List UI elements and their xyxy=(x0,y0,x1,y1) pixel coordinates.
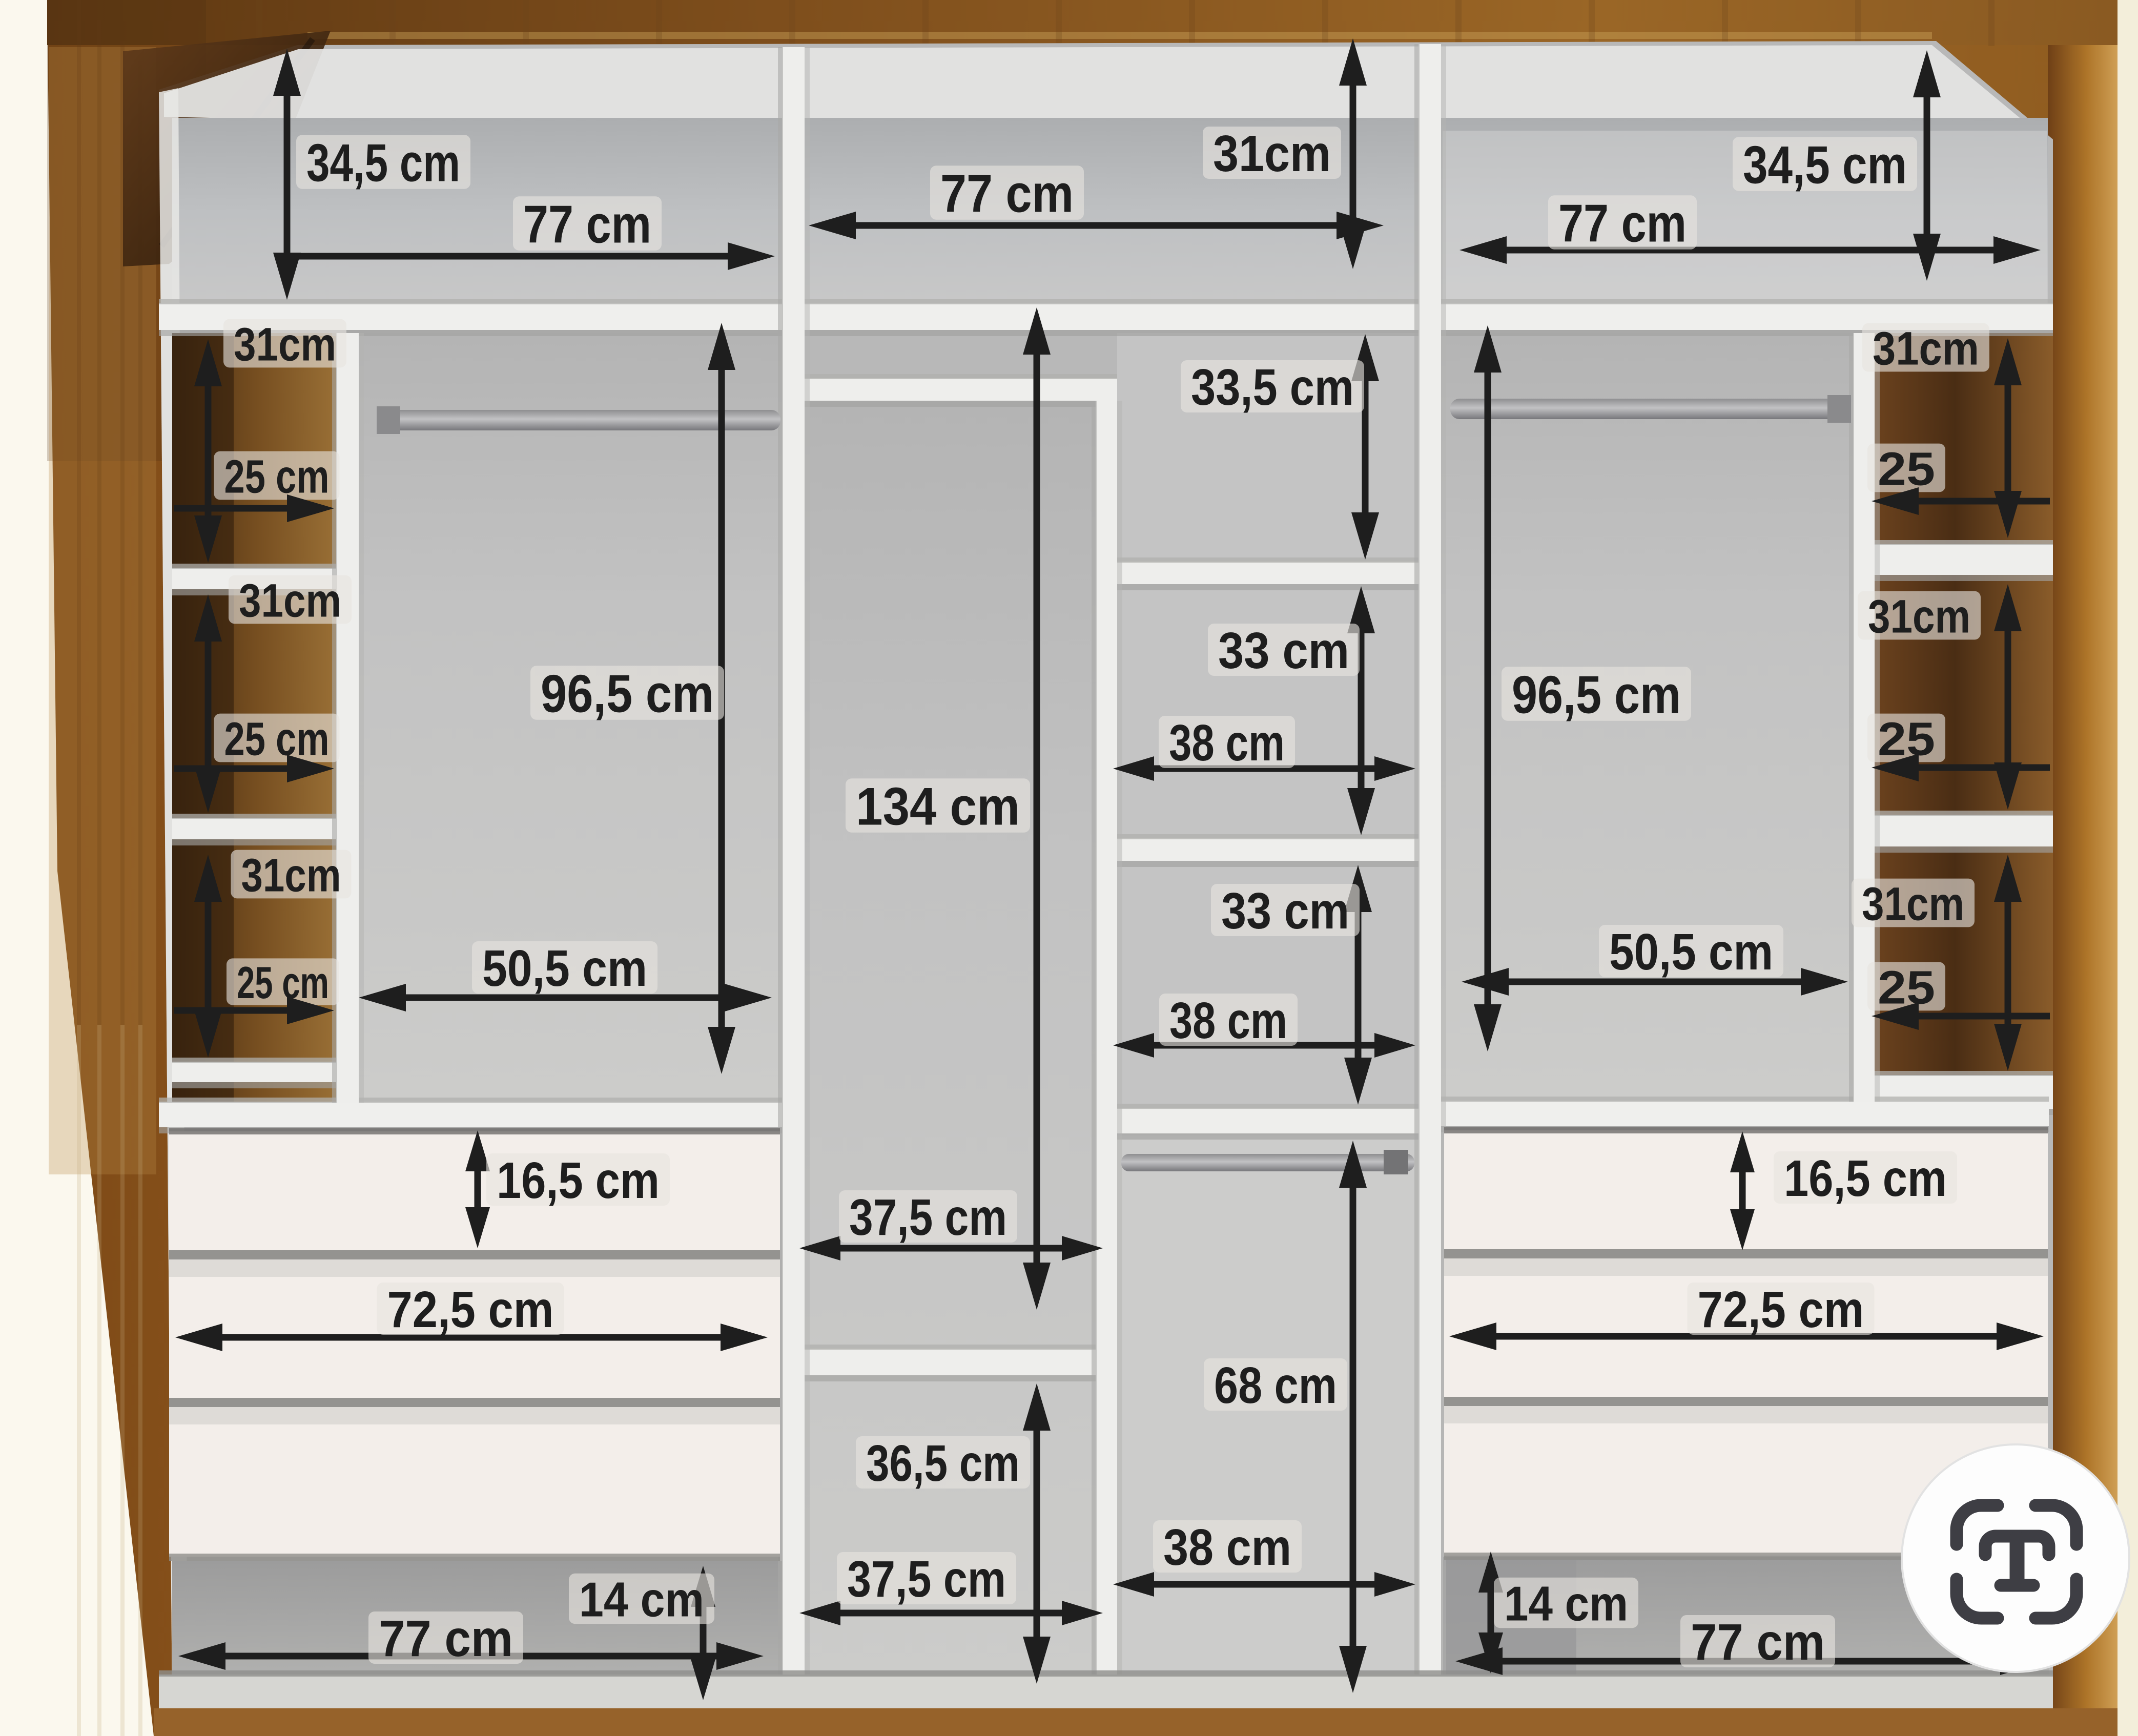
svg-text:134 cm: 134 cm xyxy=(856,777,1020,836)
svg-text:50,5 cm: 50,5 cm xyxy=(482,940,647,997)
svg-text:25 cm: 25 cm xyxy=(224,713,330,765)
svg-text:31cm: 31cm xyxy=(1862,878,1964,930)
svg-text:77 cm: 77 cm xyxy=(523,195,651,254)
svg-text:31cm: 31cm xyxy=(1873,322,1979,375)
svg-text:38 cm: 38 cm xyxy=(1169,992,1287,1049)
svg-text:72,5 cm: 72,5 cm xyxy=(387,1281,554,1338)
svg-text:38 cm: 38 cm xyxy=(1163,1519,1291,1576)
svg-text:31cm: 31cm xyxy=(234,318,336,370)
svg-text:77 cm: 77 cm xyxy=(379,1610,513,1667)
svg-text:33 cm: 33 cm xyxy=(1218,622,1349,679)
svg-text:37,5 cm: 37,5 cm xyxy=(847,1551,1006,1608)
svg-text:96,5 cm: 96,5 cm xyxy=(1512,665,1681,725)
svg-text:31cm: 31cm xyxy=(241,849,341,901)
svg-text:16,5 cm: 16,5 cm xyxy=(1784,1150,1947,1207)
svg-text:33 cm: 33 cm xyxy=(1221,882,1349,940)
svg-text:25: 25 xyxy=(1878,713,1935,765)
svg-text:31cm: 31cm xyxy=(239,574,341,627)
svg-text:77 cm: 77 cm xyxy=(940,164,1074,223)
svg-text:34,5 cm: 34,5 cm xyxy=(1743,135,1907,195)
svg-text:50,5 cm: 50,5 cm xyxy=(1609,923,1773,981)
svg-text:34,5 cm: 34,5 cm xyxy=(306,133,460,193)
svg-text:77 cm: 77 cm xyxy=(1558,194,1687,253)
svg-text:37,5 cm: 37,5 cm xyxy=(849,1189,1007,1246)
svg-text:31cm: 31cm xyxy=(1213,125,1331,182)
svg-text:96,5 cm: 96,5 cm xyxy=(541,664,714,724)
svg-text:25 cm: 25 cm xyxy=(224,450,330,503)
svg-text:68 cm: 68 cm xyxy=(1214,1357,1337,1414)
svg-text:36,5 cm: 36,5 cm xyxy=(866,1435,1020,1492)
svg-text:31cm: 31cm xyxy=(1868,590,1970,643)
svg-text:33,5 cm: 33,5 cm xyxy=(1191,359,1354,416)
svg-text:25: 25 xyxy=(1878,961,1935,1014)
svg-text:25: 25 xyxy=(1878,443,1935,495)
svg-text:14 cm: 14 cm xyxy=(1504,1577,1628,1631)
svg-text:14 cm: 14 cm xyxy=(579,1573,704,1627)
svg-text:25 cm: 25 cm xyxy=(237,957,329,1008)
svg-text:38 cm: 38 cm xyxy=(1169,714,1285,772)
svg-text:16,5 cm: 16,5 cm xyxy=(497,1152,660,1209)
svg-text:72,5 cm: 72,5 cm xyxy=(1698,1281,1864,1338)
svg-text:77 cm: 77 cm xyxy=(1691,1614,1825,1671)
